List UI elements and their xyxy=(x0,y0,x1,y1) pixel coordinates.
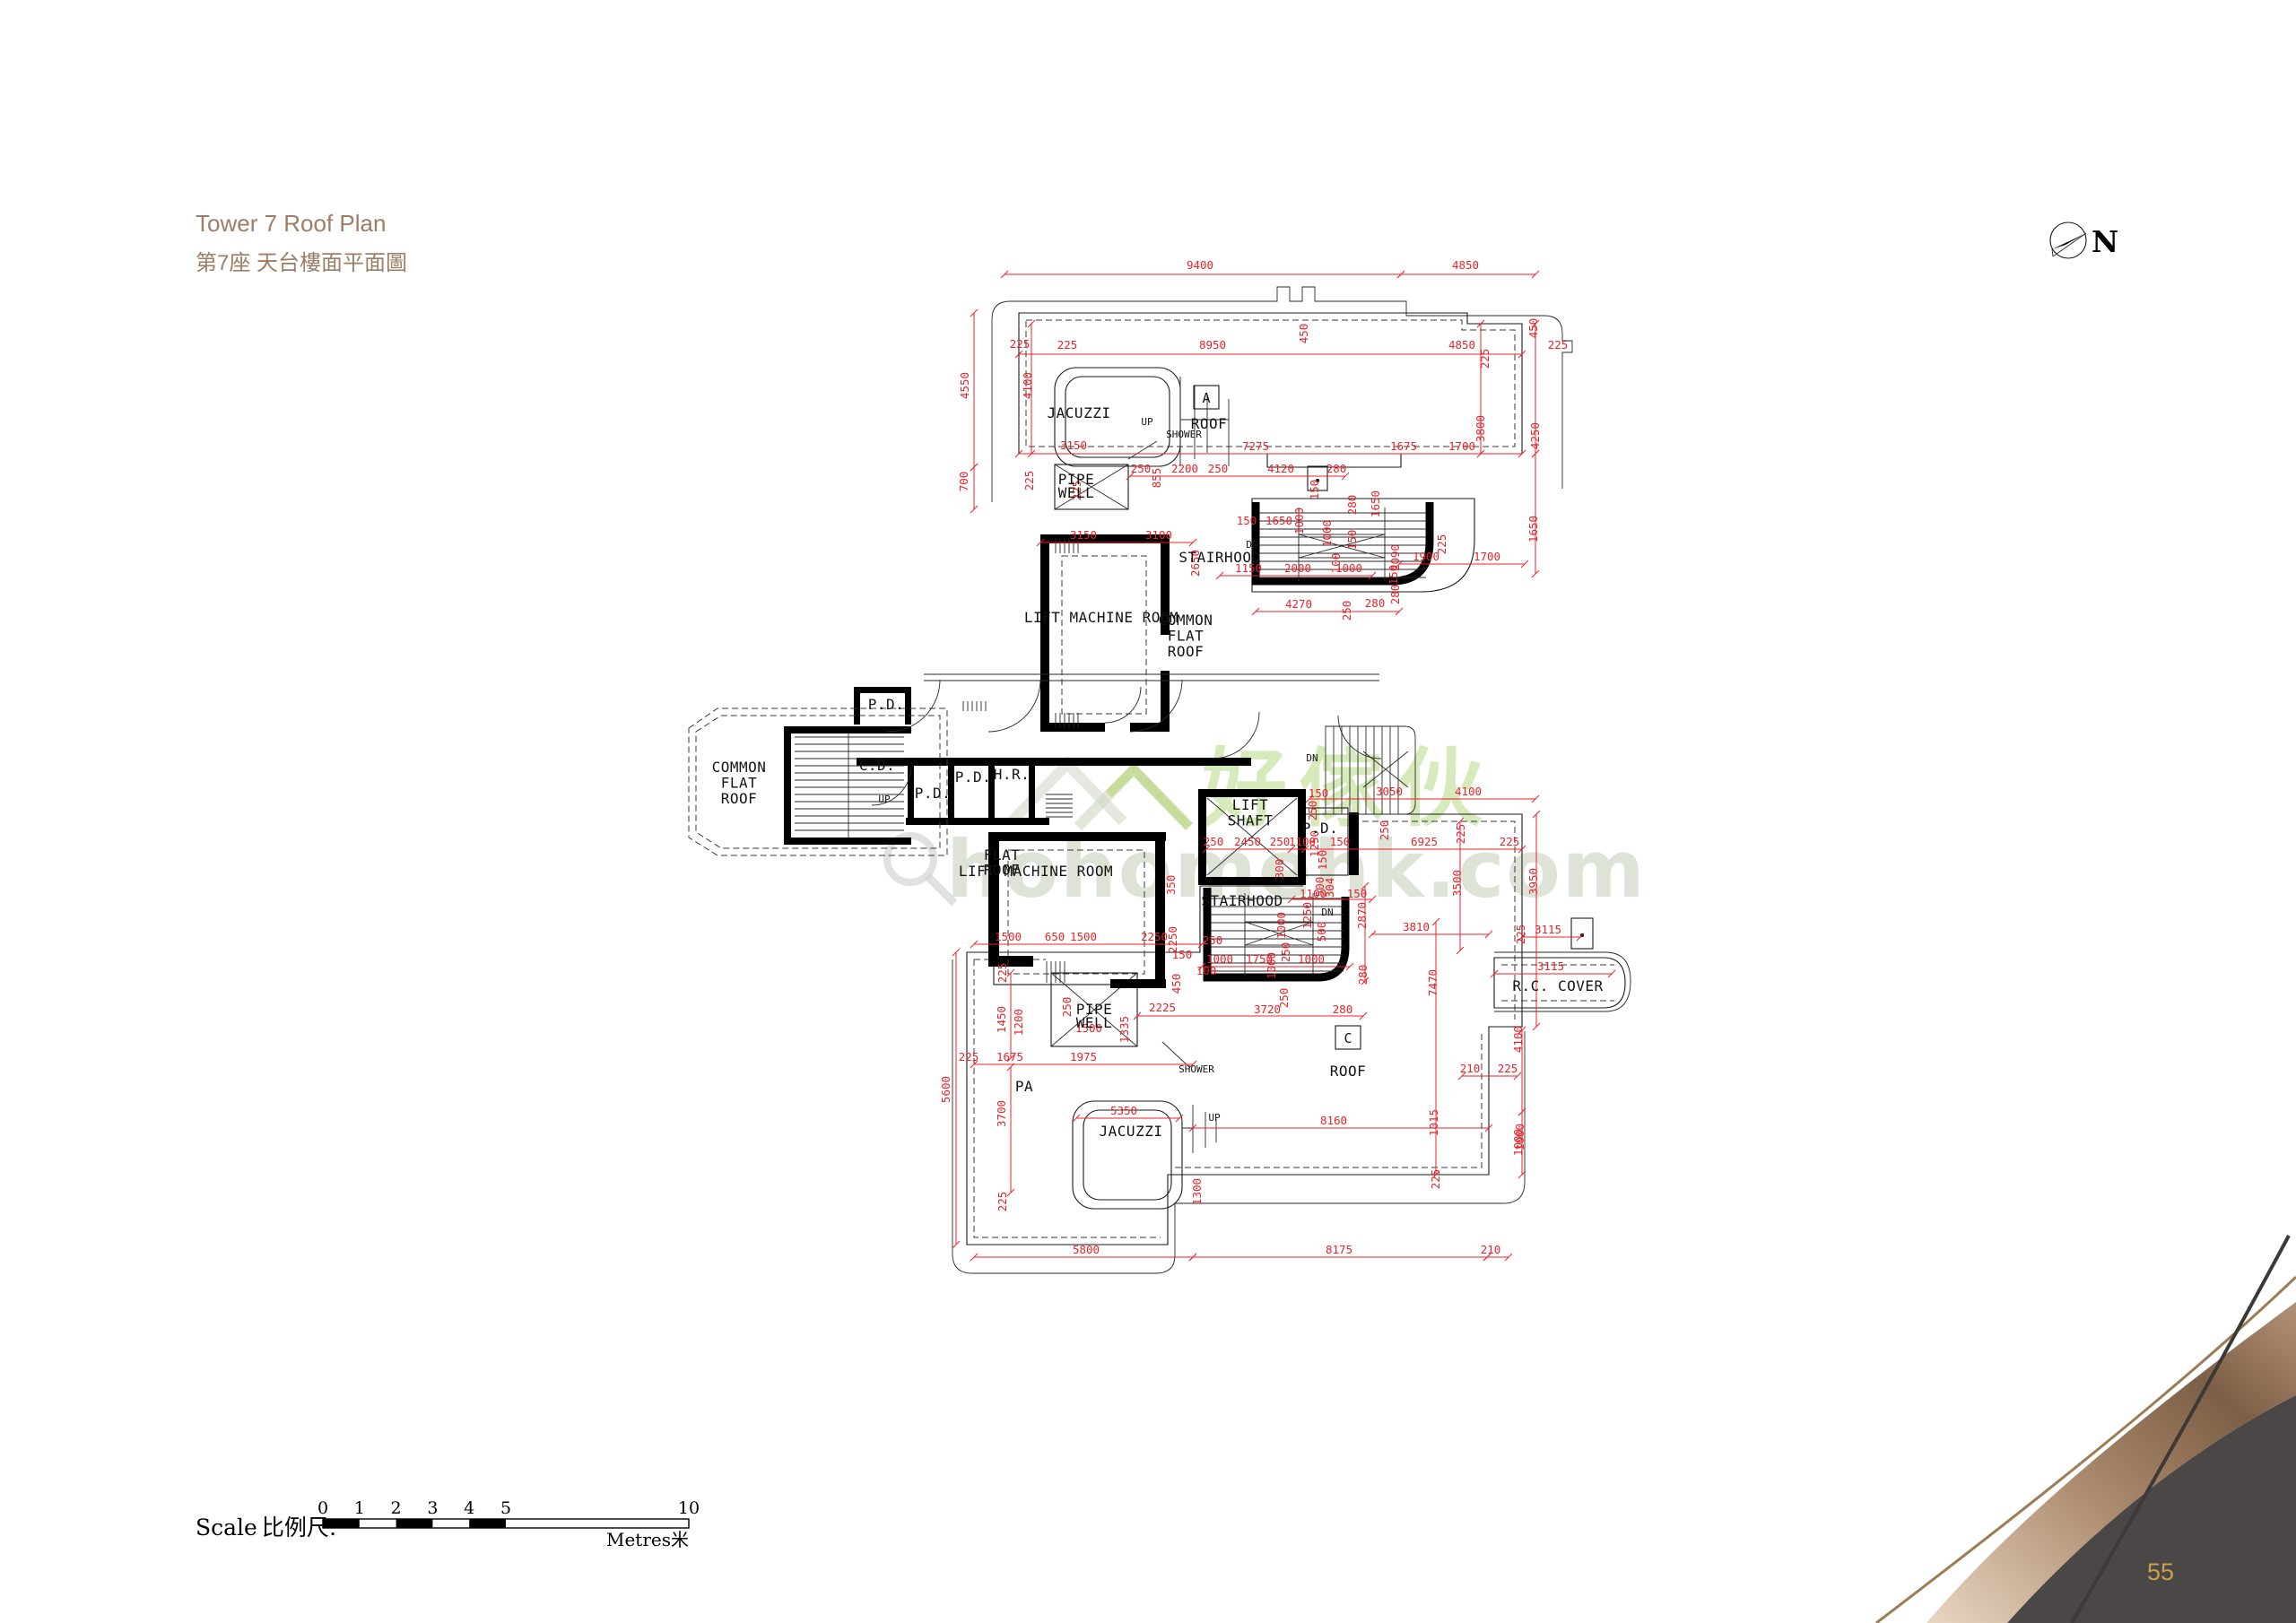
north-indicator: N xyxy=(2050,222,2118,259)
annotation-label: DN xyxy=(1306,752,1318,764)
dimension-label: 150 xyxy=(1172,948,1193,961)
dimension-label: 1650 xyxy=(1369,490,1382,517)
dimension-label: 300 xyxy=(1273,859,1286,880)
dimension-label: 1000 xyxy=(1320,520,1334,547)
dimension-label: 6925 xyxy=(1411,835,1438,848)
north-arrow-icon xyxy=(2052,233,2086,249)
dimension-label: 3950 xyxy=(1526,868,1540,895)
dimension-label: 4850 xyxy=(1452,258,1479,272)
room-label: P.D. xyxy=(915,785,952,802)
annotation-label: UP xyxy=(1208,1112,1221,1124)
room-label: PIPEWELL xyxy=(1058,471,1095,501)
dimension-label: 3150 xyxy=(1070,528,1097,542)
dimension-label: 2225 xyxy=(1149,1001,1176,1014)
room-label: COMMONFLATROOF xyxy=(1159,612,1213,660)
dimension-label: 1200 xyxy=(1012,1009,1025,1036)
dimension-label: 4270 xyxy=(1285,597,1312,611)
dimension-label: 1100 xyxy=(1300,887,1326,900)
dimension-label: 150 xyxy=(1345,530,1359,551)
dimension-label: 1675 xyxy=(1390,439,1417,453)
scale-tick-label: 5 xyxy=(500,1498,511,1518)
dimension-label: 1450 xyxy=(995,1006,1008,1033)
dimension-label: 3115 xyxy=(1537,959,1564,973)
dimension-label: 225 xyxy=(1022,471,1036,491)
dimension-label: 3800 xyxy=(1474,415,1487,442)
dimension-label: 225 xyxy=(996,963,1009,984)
dimension-label: 3150 xyxy=(1060,438,1087,452)
annotation-label: DN xyxy=(1321,907,1333,918)
dimension-label: 250 xyxy=(1378,820,1391,841)
scale-tick-label: 2 xyxy=(391,1498,402,1518)
room-label: LIFT MACHINE ROOM xyxy=(1024,609,1178,626)
dimension-label: 3050 xyxy=(1376,785,1403,798)
dimension-label: 3810 xyxy=(1403,920,1430,933)
dimension-label: 250 xyxy=(1270,835,1291,848)
dimension-label: 100 xyxy=(1329,553,1343,574)
room-label: LIFTSHAFT xyxy=(1228,796,1274,829)
room-label: R.C. COVER xyxy=(1512,977,1603,994)
dimension-label: 7470 xyxy=(1426,969,1439,996)
dimension-label: 1000 xyxy=(1511,1129,1525,1156)
dimension-label: 500 xyxy=(1315,922,1328,942)
scale-unit: Metres米 xyxy=(606,1529,689,1550)
dimension-label: 150 xyxy=(1316,850,1329,871)
dimension-label: 450 xyxy=(1170,974,1183,994)
dimension-label: 250 xyxy=(1306,801,1319,821)
dimension-label: 150 xyxy=(1347,887,1368,900)
dimension-label: 210 xyxy=(1481,1243,1501,1256)
dimension-label: 3115 xyxy=(1535,923,1561,936)
page-title-zh: 第7座 天台樓面平面圖 xyxy=(196,251,407,275)
dimension-label: 150 xyxy=(1237,514,1257,527)
dimension-label: 2870 xyxy=(1355,902,1369,929)
dimension-label: 2450 xyxy=(1234,835,1261,848)
dimension-label: 150 xyxy=(1330,835,1351,848)
page-number: 55 xyxy=(2147,1558,2174,1585)
scale-tick-label: 3 xyxy=(427,1498,438,1518)
dimension-label: 4120 xyxy=(1267,462,1294,475)
dimension-label: 225 xyxy=(1478,349,1492,369)
scale-tick-label: 0 xyxy=(317,1498,328,1518)
dimension-label: 8160 xyxy=(1320,1114,1347,1127)
dimension-label: 1000 xyxy=(1298,952,1325,966)
dimension-label: 650 xyxy=(1045,930,1065,943)
dimension-label: 2000 xyxy=(1284,561,1311,575)
dimension-label: 4550 xyxy=(958,372,971,399)
dimension-label: 700 xyxy=(957,472,970,492)
dimension-label: 1650 xyxy=(1265,514,1292,527)
floor-plan-svg: Tower 7 Roof Plan 第7座 天台樓面平面圖 N 好傢伙 hoho… xyxy=(0,0,2296,1623)
dimension-label: 225 xyxy=(1500,835,1520,848)
room-label: STAIRHOOD xyxy=(1201,892,1283,909)
dimension-label: 250 xyxy=(1204,835,1224,848)
dimension-label: 250 xyxy=(1060,997,1074,1018)
dimension-label: 4850 xyxy=(1448,338,1475,352)
dimension-label: 250 xyxy=(1203,933,1223,947)
dimension-label: 1975 xyxy=(1070,1050,1097,1063)
dimension-label: 210 xyxy=(1460,1062,1481,1075)
room-label: C.D. xyxy=(859,757,896,774)
dimension-label: 3500 xyxy=(1450,870,1464,897)
room-label: ROOF xyxy=(1191,415,1228,432)
dimension-label: 9400 xyxy=(1187,258,1213,272)
dimension-label: 225 xyxy=(1548,338,1569,352)
dimension-label: 280 xyxy=(1326,462,1347,475)
dimension-label: 2250 xyxy=(1141,930,1168,943)
dimension-label: 4100 xyxy=(1511,1026,1525,1053)
scale-bar: Scale 比例尺: 01234510 Metres米 xyxy=(196,1498,700,1550)
dimension-label: 250 xyxy=(1279,942,1292,963)
dimension-label: 350 xyxy=(1164,875,1178,896)
dimension-label: 280 xyxy=(1333,1002,1353,1016)
scale-tick-label: 10 xyxy=(678,1498,700,1518)
dimension-label: 7275 xyxy=(1242,439,1269,453)
dimension-label: 225 xyxy=(1057,338,1078,352)
room-label: P.D. xyxy=(1302,820,1339,837)
area-tag-label: A xyxy=(1202,390,1210,406)
dimension-label: 4250 xyxy=(1528,422,1542,449)
room-label: PIPEWELL xyxy=(1076,1001,1113,1031)
dimension-label: 225 xyxy=(1514,924,1527,945)
dimension-label: 450 xyxy=(1526,318,1540,339)
dimension-label: 280 xyxy=(1356,965,1370,985)
dimension-label: 225 xyxy=(959,1050,979,1063)
dimension-label: 1500 xyxy=(995,930,1022,943)
north-label: N xyxy=(2092,224,2118,259)
dimension-label: 1700 xyxy=(1448,439,1475,453)
scale-tick-label: 4 xyxy=(464,1498,474,1518)
dimension-label: 280 xyxy=(1388,585,1402,605)
dimension-label: 8950 xyxy=(1199,338,1226,352)
dimension-label: 3720 xyxy=(1254,1002,1281,1016)
scale-label: Scale 比例尺: xyxy=(196,1515,336,1541)
dimension-label: 450 xyxy=(1297,324,1310,344)
dimension-label: 225 xyxy=(1454,824,1467,845)
scale-tick-label: 1 xyxy=(354,1498,365,1518)
dimension-label: 8175 xyxy=(1326,1243,1352,1256)
room-label: ROOF xyxy=(1330,1063,1367,1080)
dimension-label: 5350 xyxy=(1110,1104,1137,1117)
room-label: LIFT MACHINE ROOM xyxy=(959,863,1113,880)
dimension-label: 225 xyxy=(1435,534,1448,555)
dimension-label: 1300 xyxy=(1190,1178,1204,1205)
corner-decoration: 55 xyxy=(1876,1236,2296,1623)
dimension-label: 1500 xyxy=(1070,930,1097,943)
dimension-label: 150 xyxy=(1308,480,1321,500)
room-label: JACUZZI xyxy=(1100,1123,1163,1140)
room-label: P.D. xyxy=(868,696,905,713)
room-label: COMMONFLATROOF xyxy=(712,759,767,807)
dimension-label: 150 xyxy=(1309,786,1329,800)
dimension-label: 5600 xyxy=(939,1076,952,1103)
dimension-label: 1675 xyxy=(996,1050,1023,1063)
dimension-label: 225 xyxy=(1498,1062,1518,1075)
dimension-label: 2200 xyxy=(1171,462,1198,475)
room-label: P.D. xyxy=(955,768,992,785)
annotation-label: UP xyxy=(878,794,891,805)
page-title: Tower 7 Roof Plan xyxy=(196,210,386,237)
dimension-label: 280 xyxy=(1365,596,1386,610)
dimension-label: 1700 xyxy=(1474,550,1500,563)
dimension-label: 225 xyxy=(1429,1169,1442,1190)
dimension-label: 3100 xyxy=(1145,528,1172,542)
room-label: JACUZZI xyxy=(1048,404,1111,421)
room-label: H.R. xyxy=(994,766,1031,783)
dimension-label: 1000 xyxy=(1274,912,1288,939)
dimension-label: 225 xyxy=(996,1192,1009,1212)
dimension-label: 1650 xyxy=(1526,516,1540,542)
room-label: STAIRHOOD xyxy=(1178,549,1260,566)
dimension-label: 225 xyxy=(1010,337,1031,351)
dimension-label: 3700 xyxy=(995,1100,1008,1127)
annotation-label: SHOWER xyxy=(1178,1063,1214,1075)
dimension-label: 1750 xyxy=(1246,952,1273,966)
brochure-page: Tower 7 Roof Plan 第7座 天台樓面平面圖 N 好傢伙 hoho… xyxy=(0,0,2296,1623)
dimension-label: 1000 xyxy=(1292,508,1306,534)
dimension-label: 1250 xyxy=(1300,902,1314,929)
room-label: PA xyxy=(1015,1078,1033,1095)
annotation-label: UP xyxy=(1141,416,1153,428)
dimension-label: 250 xyxy=(1131,462,1152,475)
dimension-label: 280 xyxy=(1345,495,1359,516)
dimension-label: 5800 xyxy=(1073,1243,1100,1256)
dimension-label: 4100 xyxy=(1455,785,1482,798)
dimension-label: 1015 xyxy=(1427,1109,1440,1136)
area-tag-label: C xyxy=(1344,1030,1352,1046)
dimension-label: 150 xyxy=(1387,565,1400,586)
dimension-label: 250 xyxy=(1208,462,1229,475)
dimension-label: 1335 xyxy=(1118,1016,1131,1043)
dimension-label: 100 xyxy=(1196,964,1217,977)
dimension-label: 855 xyxy=(1150,468,1163,489)
dimension-label: 250 xyxy=(1340,601,1353,621)
dimension-label: 4100 xyxy=(1021,372,1034,399)
